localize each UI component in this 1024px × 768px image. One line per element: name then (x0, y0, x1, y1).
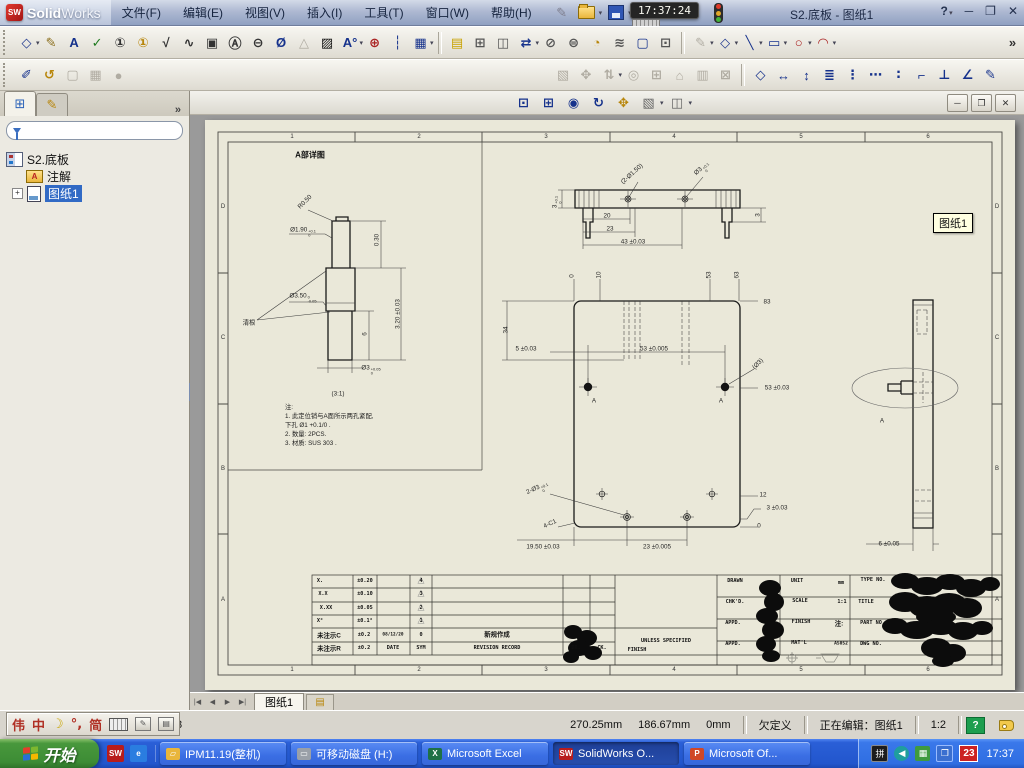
titleblock-text: DR. (571, 645, 580, 651)
titleblock-text: ±0.2 (358, 645, 371, 651)
titleblock-text: 未注示R (317, 644, 341, 653)
document-view-toolbar: ⊡⊞◉↻✥▧▾◫▾ ─ ❐ ✕ (190, 91, 1024, 115)
zone-label: 6 (926, 667, 929, 673)
dimension-text: Ø3.500-0.05 (289, 292, 316, 303)
rotate-component-icon: ⇅ (597, 64, 620, 86)
rectangle-icon[interactable]: ▭ (763, 32, 786, 54)
dimension-text: 53 (706, 271, 713, 278)
rotate-view-icon[interactable]: ↻ (587, 92, 610, 114)
excel-icon: X (428, 748, 442, 760)
view-title: A部详图 (295, 150, 325, 161)
tray-network-icon[interactable]: ❐ (936, 745, 953, 762)
solidworks-app: { "titlebar": { "logo_sw": "SW", "logo_s… (0, 0, 1024, 768)
table-icon-dropdown[interactable]: ▾ (430, 39, 434, 47)
titleblock-text: REVISION RECORD (474, 645, 521, 651)
doc-restore-button[interactable]: ❐ (971, 94, 992, 112)
titleblock-text: FINISH (792, 619, 811, 625)
quicklaunch-solidworks-icon[interactable]: SW (107, 745, 124, 762)
tray-date-badge[interactable]: 23 (959, 745, 978, 762)
balloon-icon[interactable]: ① (109, 32, 132, 54)
dimension-text: 83 (763, 299, 770, 306)
zone-label: 2 (417, 667, 420, 673)
arc-icon[interactable]: ◠ (812, 32, 835, 54)
dimension-tools-group: ▧✥⇅▾◎⊞⌂▥⊠◇↔↕≣⋮⋯∶⌐⊥∠✎ (551, 64, 1002, 86)
close-button[interactable]: ✕ (1008, 4, 1018, 18)
zone-label: 3 (544, 134, 547, 140)
next-sheet-button[interactable]: ▶ (220, 695, 235, 709)
drawing-mode-icon: ▦ (84, 64, 107, 86)
crop-view-icon[interactable]: ⊡ (654, 32, 677, 54)
dimension-text: 0.30 (374, 234, 381, 246)
drawing-notes: 注:1. 此定位销与A面所示两孔紧配, 下孔 Ø1 +0.1/0 .2. 数量:… (285, 403, 460, 448)
zone-label: 2 (417, 134, 420, 140)
doc-close-button[interactable]: ✕ (995, 94, 1016, 112)
zone-label: 4 (672, 134, 675, 140)
zone-label: B (221, 466, 225, 472)
ime-settings-icon[interactable]: ✎ (135, 717, 151, 731)
panel-tabs: ⊞ ✎ » (0, 91, 189, 116)
document-window-controls: ─ ❐ ✕ (947, 94, 1016, 112)
help-button[interactable]: ? ▾ (940, 4, 952, 18)
view-orientation-icon-dropdown[interactable]: ▾ (660, 99, 664, 107)
circle-icon[interactable]: ○ (787, 32, 810, 54)
dimension-text: 0 (757, 523, 761, 530)
sheet-icon (27, 186, 41, 202)
display-style-icon-dropdown[interactable]: ▾ (689, 99, 693, 107)
tab-feature-manager[interactable]: ⊞ (4, 91, 36, 116)
restore-button[interactable]: ❐ (985, 4, 996, 18)
view-orientation-icon[interactable]: ▧ (637, 92, 660, 114)
add-sheet-tab[interactable]: ▤ (306, 694, 334, 710)
table-icon[interactable]: ▦ (409, 32, 432, 54)
pan-icon[interactable]: ✥ (612, 92, 635, 114)
window-title: S2.底板 - 图纸1 (790, 6, 873, 23)
zone-label: A (221, 597, 225, 603)
dimension-text: (3:1) (332, 391, 345, 398)
dim-chamfer-icon[interactable]: ⌐ (910, 64, 933, 86)
menu-item-4[interactable]: 工具(T) (353, 0, 414, 26)
zone-label: 1 (290, 667, 293, 673)
titleblock-text: PART NO (860, 620, 882, 626)
titleblock-text: TYPE NO. (861, 577, 886, 583)
taskbar-button-4[interactable]: PMicrosoft Of... (684, 742, 810, 765)
drive-icon: ▭ (297, 748, 311, 760)
taskbar-button-0[interactable]: ▱IPM11.19(整机) (160, 742, 286, 765)
verify-icon[interactable]: ✐ (15, 64, 38, 86)
titleblock-text: X° (317, 618, 323, 624)
note-line: 注: (285, 403, 460, 412)
titleblock-text: APPD. (725, 620, 741, 626)
annotations-folder-icon: A (26, 170, 43, 183)
titleblock-text: ±0.2 (358, 632, 371, 638)
move-component-icon: ◎ (622, 64, 645, 86)
datum-target-icon[interactable]: ⊖ (247, 32, 270, 54)
status-sheet-scale: 1:2 (923, 719, 954, 731)
zone-label: 4 (672, 667, 675, 673)
titleblock-text: DATE (387, 645, 400, 651)
hole-callout-icon[interactable]: Ø (270, 32, 293, 54)
folder-icon: ▱ (166, 748, 180, 760)
zone-label: 5 (799, 667, 802, 673)
titleblock-text: 1:1 (837, 599, 846, 605)
titleblock-text: 1 (419, 618, 422, 624)
status-z-coordinate: 0mm (698, 719, 738, 731)
titleblock-text: X.XX (320, 605, 333, 611)
tree-item-label: 注解 (47, 168, 71, 185)
note-line: 下孔 Ø1 +0.1/0 . (285, 421, 460, 430)
titleblock-text: A5052 (834, 642, 848, 647)
panel-expand-chevron-icon[interactable]: » (175, 104, 181, 116)
titleblock-text: UNIT (791, 578, 804, 584)
line-icon[interactable]: ╲ (738, 32, 761, 54)
ime-simplified-icon[interactable]: 简 (89, 715, 102, 734)
dimension-text: 10 (596, 271, 603, 278)
section-view-icon[interactable]: ⊘ (539, 32, 562, 54)
interference-icon: ▥ (691, 64, 714, 86)
property-manager-icon: ✎ (47, 97, 58, 113)
zone-label: C (995, 335, 999, 341)
render-icon: ● (107, 64, 130, 86)
zone-label: 5 (799, 134, 802, 140)
zone-label: C (221, 335, 225, 341)
tray-back-icon[interactable]: ◀ (894, 746, 909, 761)
smart-fasteners-icon: ⊞ (645, 64, 668, 86)
toolbar-grip[interactable] (3, 30, 12, 55)
drawing-canvas[interactable]: ⊡⊞◉↻✥▧▾◫▾ ─ ❐ ✕ (190, 91, 1024, 710)
logo-text-works: Works (61, 5, 100, 21)
dim-horizontal-ordinate-icon[interactable]: ⋯ (864, 64, 887, 86)
arc-icon-dropdown[interactable]: ▾ (833, 39, 837, 47)
dimension-text: 5 ±0.03 (516, 346, 537, 353)
spell-check-icon[interactable]: ✓ (86, 32, 109, 54)
dimension-text: 43 ±0.03 (621, 239, 645, 246)
quicklaunch-ie-icon[interactable]: e (130, 745, 147, 762)
rebuild-icon[interactable]: ↺ (38, 64, 61, 86)
tab-property-manager[interactable]: ✎ (36, 93, 68, 116)
dimension-text: 3+0.10 (551, 196, 562, 208)
feature-tree: S2.底板 A 注解 + 图纸1 (0, 145, 189, 208)
status-editing-label: 正在编辑：图纸1 (812, 717, 911, 733)
sheet-tab-sheet1[interactable]: 图纸1 (254, 693, 304, 711)
start-button[interactable]: 开始 (0, 739, 99, 768)
auto-balloon-icon[interactable]: ① (132, 32, 155, 54)
shaded-view-icon: ▢ (61, 64, 84, 86)
ime-name-icon[interactable]: 伟 (12, 715, 25, 734)
toolbar-overflow-icon[interactable]: » (1001, 32, 1024, 54)
dim-ordinate-icon[interactable]: ⋮ (841, 64, 864, 86)
centerline-icon[interactable]: ┆ (386, 32, 409, 54)
zone-label: A (995, 597, 999, 603)
ime-menu-icon[interactable]: ▤ (158, 717, 174, 731)
center-mark-icon[interactable]: ⊕ (363, 32, 386, 54)
dimension-text: 53 ±0.03 (765, 385, 789, 392)
open-button[interactable] (576, 3, 598, 23)
first-sheet-button[interactable]: |◀ (190, 695, 205, 709)
dimension-text: Ø1.90+0.10 (290, 226, 316, 237)
windows-taskbar: 开始 SWe ▱IPM11.19(整机)▭可移动磁盘 (H:)XMicrosof… (0, 739, 1024, 768)
titleblock-text: 08/12/20 (382, 633, 403, 638)
dimension-text: 53 ±0.005 (640, 346, 668, 353)
sheet-tab-bar: |◀ ◀ ▶ ▶| 图纸1 ▤ (190, 692, 1024, 710)
surface-finish-icon[interactable]: √ (155, 32, 178, 54)
ime-halfwidth-icon[interactable]: ☽ (52, 717, 64, 732)
area-hatch-icon[interactable]: ▨ (316, 32, 339, 54)
tray-clock[interactable]: 17:37 (986, 748, 1014, 760)
desktop-clock-gadget: 17:37:24 (630, 2, 699, 19)
titleblock-text: X. (317, 578, 323, 584)
titleblock-text: 2 (419, 605, 422, 611)
dim-smart-icon[interactable]: ◇ (749, 64, 772, 86)
zone-label: B (995, 466, 999, 472)
ime-toolbar: 伟 中 ☽ °, 简 ✎ ▤ (6, 712, 180, 736)
titleblock-text: DWG NO. (860, 641, 882, 647)
system-tray: 拼 ◀ ▦ ❐ 23 17:37 (858, 739, 1024, 768)
titleblock-text: 新规作成 (484, 630, 510, 639)
expander-icon[interactable]: + (12, 188, 23, 199)
last-sheet-button[interactable]: ▶| (235, 695, 250, 709)
status-y-coordinate: 186.67mm (630, 719, 698, 731)
menu-item-0[interactable]: 文件(F) (111, 0, 172, 26)
dim-vertical-ordinate-icon[interactable]: ∶ (887, 64, 910, 86)
titleblock-text: SYM (416, 645, 425, 651)
menu-item-2[interactable]: 视图(V) (234, 0, 296, 26)
dimension-text: 6 (362, 332, 369, 336)
view-sketch-tools-group: ⊞◫⇄▾⊘⊜◔≋▢⊡✎▾◇▾╲▾▭▾○▾◠▾» (469, 32, 1024, 54)
dimension-text: 63 (734, 271, 741, 278)
task-label: Microsoft Of... (709, 748, 777, 760)
note-line: 2. 数量: 2PCS. (285, 430, 460, 439)
minimize-button[interactable]: ─ (965, 4, 974, 18)
task-label: Microsoft Excel (447, 748, 522, 760)
zoom-to-fit-icon[interactable]: ⊡ (512, 92, 535, 114)
toolbar-grip[interactable] (3, 63, 12, 87)
taskbar-button-2[interactable]: XMicrosoft Excel (422, 742, 548, 765)
dimension-text: 19.50 ±0.03 (526, 544, 559, 551)
view-tools: ⊡⊞◉↻✥▧▾◫▾ (512, 92, 692, 114)
zoom-to-selection-icon[interactable]: ◉ (562, 92, 585, 114)
window-controls: ? ▾ ─ ❐ ✕ (940, 4, 1018, 18)
revision-symbol-icon: △ (293, 32, 316, 54)
menu-item-5[interactable]: 窗口(W) (415, 0, 480, 26)
feature-manager-panel: ⊞ ✎ » S2.底板 A 注解 + 图纸1 (0, 91, 190, 710)
secondary-toolbar: ✐↺▢▦● ▧✥⇅▾◎⊞⌂▥⊠◇↔↕≣⋮⋯∶⌐⊥∠✎ (0, 59, 1024, 91)
doc-minimize-button[interactable]: ─ (947, 94, 968, 112)
titleblock-text: X.X (318, 591, 327, 597)
solidworks-logo-icon: SW (6, 4, 23, 21)
titleblock-text: 0 (419, 632, 422, 638)
note-icon[interactable]: A (63, 32, 86, 54)
smart-dimension-icon[interactable]: ◇ (15, 32, 38, 54)
tree-item-label-selected: 图纸1 (45, 185, 82, 202)
titleblock-text: SCALE (792, 598, 808, 604)
geometric-tolerance-icon[interactable]: ▣ (201, 32, 224, 54)
title-bar: SW SolidWorks 文件(F)编辑(E)视图(V)插入(I)工具(T)窗… (0, 0, 1024, 26)
dimension-text: 34 (503, 326, 510, 333)
prev-sheet-button[interactable]: ◀ (205, 695, 220, 709)
dimension-text: 6 ±0.05 (879, 541, 900, 548)
status-definition-state: 欠定义 (751, 717, 800, 733)
titleblock-text: CHK'D. (726, 599, 745, 605)
menu-item-6[interactable]: 帮助(H) (480, 0, 543, 26)
block-icon[interactable]: A° (339, 32, 362, 54)
dimension-text: Ø3+0.050 (361, 364, 380, 375)
titleblock-text: 3 (419, 591, 422, 597)
dimension-text: A (880, 418, 884, 425)
ime-punctuation-icon[interactable]: °, (71, 717, 82, 732)
logo-text-solid: Solid (27, 5, 61, 21)
task-label: IPM11.19(整机) (185, 746, 261, 762)
dimension-text: 20 (603, 213, 610, 220)
note-line: 1. 此定位销与A面所示两孔紧配, (285, 412, 460, 421)
tree-item-sheet1[interactable]: + 图纸1 (2, 185, 187, 202)
sketch-dimension-icon[interactable]: ◇ (714, 32, 737, 54)
open-dropdown-icon[interactable]: ▾ (599, 9, 603, 17)
task-label: 可移动磁盘 (H:) (316, 746, 392, 762)
autodimension-icon[interactable]: ✎ (979, 64, 1002, 86)
pen-icon[interactable]: ✎ (551, 3, 573, 23)
titleblock-text: ±0.1° (357, 618, 373, 624)
titleblock-text: FINISH (628, 647, 647, 653)
zone-label: 3 (544, 667, 547, 673)
titleblock-text: TITLE (858, 599, 874, 605)
zone-label: 6 (926, 134, 929, 140)
dimension-text: 3.20 ±0.03 (395, 299, 402, 329)
tray-ime-icon[interactable]: 拼 (871, 745, 888, 762)
note-line: 3. 材质: SUS 303 . (285, 439, 460, 448)
model-items-icon[interactable]: ✎ (40, 32, 63, 54)
titleblock-text: 未注示C (317, 631, 341, 640)
add-sheet-icon: ▤ (315, 697, 324, 708)
insert-components-icon: ▧ (551, 64, 574, 86)
weld-symbol-icon[interactable]: ∿ (178, 32, 201, 54)
titleblock-text: ±0.10 (357, 591, 373, 597)
traffic-light-icon (714, 3, 723, 23)
annotation-tools-group: ◇▾✎A✓①①√∿▣Ⓐ⊖Ø△▨A°▾⊕┆▦▾▤ (15, 32, 469, 54)
dim-horizontal-icon[interactable]: ↔ (772, 64, 795, 86)
mate-icon: ✥ (574, 64, 597, 86)
zone-label: D (995, 204, 999, 210)
ppt-icon: P (690, 748, 704, 760)
titleblock-text: APPD. (725, 641, 741, 647)
filter-funnel-icon (13, 128, 21, 134)
dimension-text: 3 (755, 213, 762, 217)
assembly-features-icon: ⊠ (714, 64, 737, 86)
dimension-text: 0 (569, 274, 576, 278)
menu-item-1[interactable]: 编辑(E) (172, 0, 234, 26)
dimension-text: 3 ±0.03 (767, 505, 788, 512)
feature-tree-icon: ⊞ (15, 96, 26, 112)
titleblock-text: ±0.20 (357, 578, 373, 584)
task-label: SolidWorks O... (578, 748, 654, 760)
tree-root-label: S2.底板 (27, 151, 69, 168)
tree-root-row[interactable]: S2.底板 (2, 151, 187, 168)
quick-launch: SWe (99, 745, 156, 762)
zoom-to-area-icon[interactable]: ⊞ (537, 92, 560, 114)
sketch-icon: ✎ (689, 32, 712, 54)
menu-bar: 文件(F)编辑(E)视图(V)插入(I)工具(T)窗口(W)帮助(H) (111, 0, 543, 25)
ime-mode-chinese[interactable]: 中 (32, 715, 45, 734)
dim-baseline-icon[interactable]: ≣ (818, 64, 841, 86)
sheet-tooltip: 图纸1 (933, 213, 973, 233)
drawing-document-icon (6, 152, 23, 167)
titleblock-text: ±0.05 (357, 605, 373, 611)
taskbar-button-3[interactable]: SWSolidWorks O... (553, 742, 679, 765)
solidworks-logo: SW SolidWorks (0, 0, 111, 25)
dimension-text: A (592, 398, 596, 405)
ime-soft-keyboard-icon[interactable] (109, 718, 128, 731)
titleblock-text: mm (838, 580, 844, 586)
drawing-sheet[interactable]: A部详图R0.50Ø1.90+0.100.30Ø3.500-0.0563.20 … (205, 120, 1015, 690)
zone-label: D (221, 204, 225, 210)
taskbar-button-1[interactable]: ▭可移动磁盘 (H:) (291, 742, 417, 765)
menu-item-3[interactable]: 插入(I) (296, 0, 353, 26)
standard-tools-group: ✐↺▢▦● (15, 64, 130, 86)
windows-flag-icon (23, 746, 38, 762)
break-view-icon[interactable]: ▢ (631, 32, 654, 54)
dim-angular-icon[interactable]: ∠ (956, 64, 979, 86)
projected-view-icon[interactable]: ⇄ (515, 32, 538, 54)
save-button[interactable] (605, 3, 627, 23)
dimension-text: 23 (606, 226, 613, 233)
titleblock-text: 注: (835, 619, 844, 628)
tree-filter-input[interactable] (6, 121, 183, 140)
detail-view-icon[interactable]: ◔ (585, 32, 608, 54)
titleblock-text: MAT'L (791, 640, 807, 646)
tree-item-annotations[interactable]: A 注解 (2, 168, 187, 185)
broken-view-icon[interactable]: ≋ (608, 32, 631, 54)
status-x-coordinate: 270.25mm (562, 719, 630, 731)
dimension-text: 12 (759, 492, 766, 499)
titleblock-text: UNLESS SPECIFIED (641, 638, 691, 644)
dimension-text: 23 ±0.005 (643, 544, 671, 551)
display-style-icon[interactable]: ◫ (666, 92, 689, 114)
model-view-icon[interactable]: ◫ (492, 32, 515, 54)
titleblock-text: CK. (597, 645, 606, 651)
quick-tips-help-button[interactable]: ? (966, 717, 985, 734)
standard-3-view-icon[interactable]: ⊞ (469, 32, 492, 54)
datum-feature-icon[interactable]: Ⓐ (224, 32, 247, 54)
dim-vertical-icon[interactable]: ↕ (795, 64, 818, 86)
dim-perpendicular-icon[interactable]: ⊥ (933, 64, 956, 86)
zone-label: 1 (290, 134, 293, 140)
design-binder-icon[interactable]: ▤ (446, 32, 469, 54)
exploded-view-icon: ⌂ (668, 64, 691, 86)
tray-safely-remove-icon[interactable]: ▦ (915, 746, 930, 761)
taskbar-buttons: ▱IPM11.19(整机)▭可移动磁盘 (H:)XMicrosoft Excel… (160, 742, 858, 765)
tags-icon[interactable] (999, 720, 1014, 731)
aligned-section-icon[interactable]: ⊜ (562, 32, 585, 54)
titleblock-text: 4 (419, 578, 422, 584)
dimension-text: A (719, 398, 723, 405)
dimension-text: 清根 (243, 318, 256, 327)
sw-icon: SW (559, 748, 573, 760)
annotation-toolbar: ◇▾✎A✓①①√∿▣Ⓐ⊖Ø△▨A°▾⊕┆▦▾▤ ⊞◫⇄▾⊘⊜◔≋▢⊡✎▾◇▾╲▾… (0, 26, 1024, 59)
titleblock-text: DRAWN (727, 578, 743, 584)
